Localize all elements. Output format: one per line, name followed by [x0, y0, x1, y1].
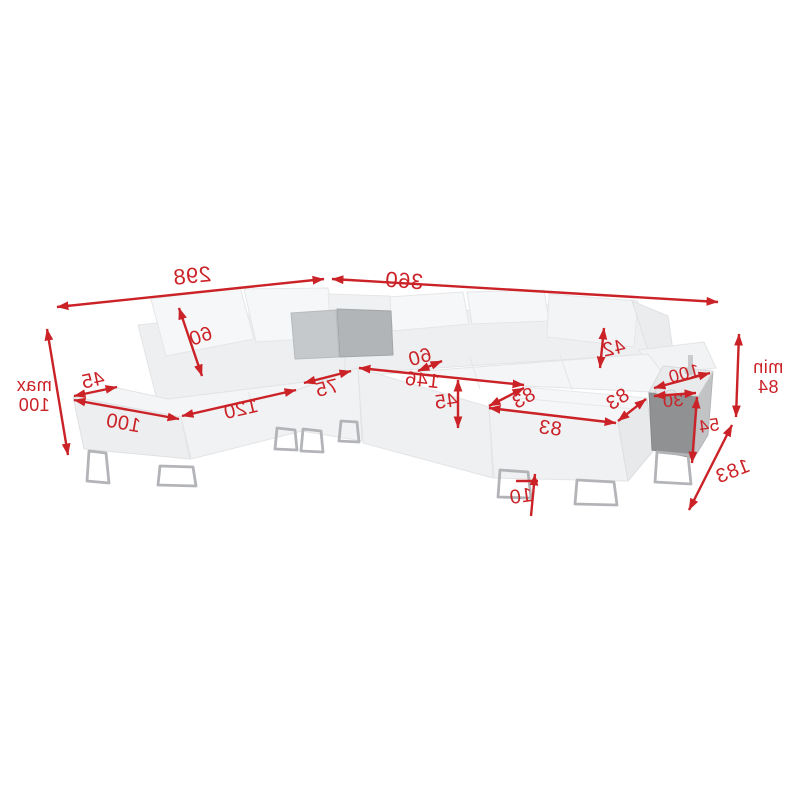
pillow-right	[337, 309, 393, 357]
dim-label-min-value: 84	[753, 378, 784, 398]
dim-arrow-min-84	[736, 334, 739, 417]
dim-label-armrest-width: 45	[79, 367, 107, 394]
dim-label-headrest-right: 42	[600, 335, 628, 362]
leg	[158, 466, 196, 486]
leg	[87, 451, 109, 483]
leg	[575, 480, 617, 505]
dim-label-bed-length: 146	[403, 368, 440, 395]
pillow-left	[291, 310, 339, 359]
dim-label-seat-height: 45	[433, 389, 459, 415]
headrest-right-1	[388, 292, 469, 331]
dim-label-max-value: 100	[16, 396, 52, 416]
dim-label-table-height: 54	[697, 414, 721, 438]
dim-label-min-word: min	[753, 358, 784, 378]
dim-label-leg-height: 10	[508, 484, 534, 510]
dim-label-max-height: max 100	[16, 376, 52, 416]
dim-label-table-width: 30	[662, 390, 684, 412]
dim-label-max-word: max	[16, 376, 52, 396]
dim-label-total-right: 360	[384, 267, 424, 296]
dim-label-total-left: 298	[172, 261, 213, 291]
sofa-dimension-image: 298 360 max 100 60 45 100 120 75 146 60 …	[0, 0, 800, 800]
headrest-right-2	[467, 290, 549, 324]
dim-label-min-height: min 84	[753, 358, 784, 398]
dim-label-chaise-front: 83	[537, 416, 563, 442]
headrest-right-3	[547, 294, 638, 347]
